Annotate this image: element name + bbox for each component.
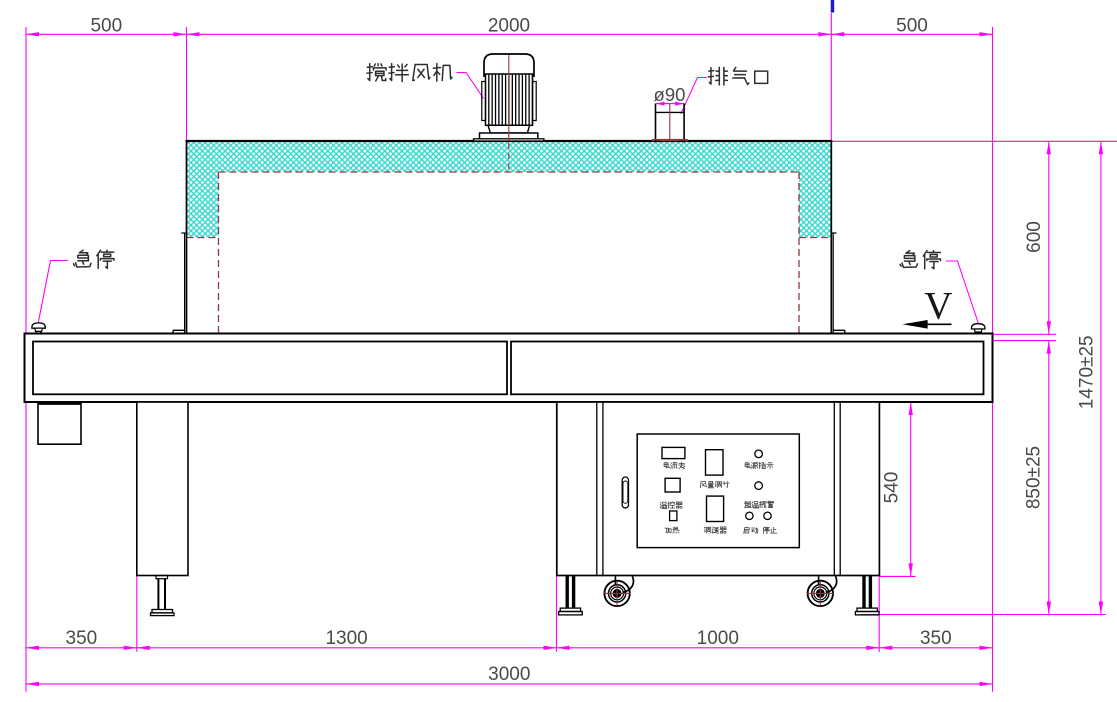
- svg-text:3000: 3000: [488, 664, 530, 685]
- svg-text:V: V: [924, 284, 952, 327]
- svg-text:850±25: 850±25: [1024, 446, 1045, 509]
- svg-text:500: 500: [896, 16, 928, 37]
- svg-text:1300: 1300: [325, 628, 367, 649]
- svg-text:600: 600: [1024, 221, 1045, 253]
- svg-text:1470±25: 1470±25: [1077, 335, 1098, 409]
- svg-text:540: 540: [882, 472, 903, 504]
- svg-text:2000: 2000: [488, 16, 530, 37]
- svg-text:350: 350: [920, 628, 952, 649]
- svg-text:500: 500: [90, 16, 122, 37]
- svg-text:ø90: ø90: [654, 84, 686, 105]
- svg-text:1000: 1000: [697, 628, 739, 649]
- svg-text:350: 350: [66, 628, 98, 649]
